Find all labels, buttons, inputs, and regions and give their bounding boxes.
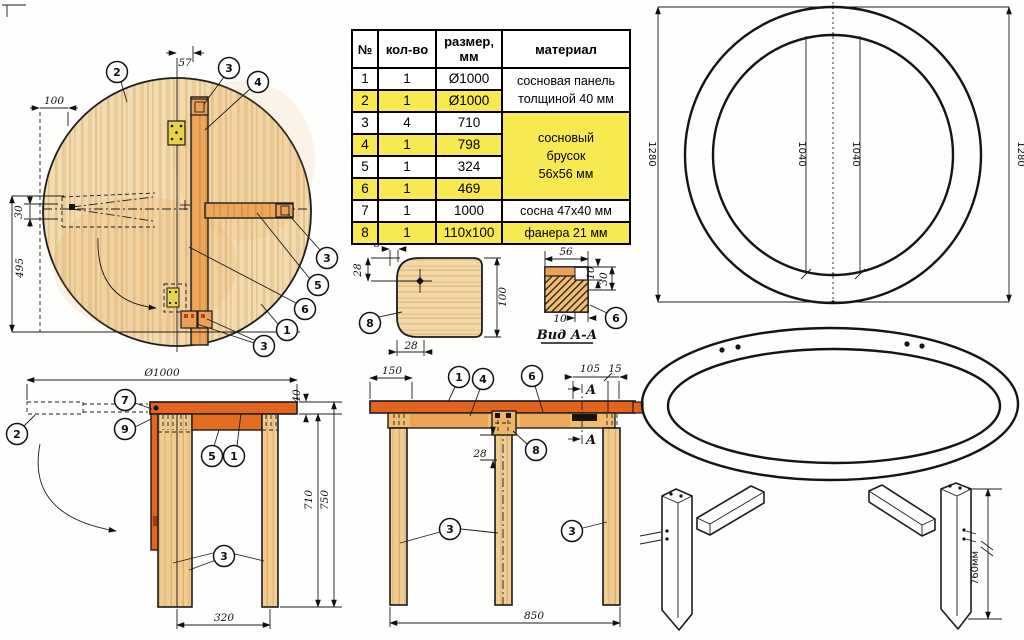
hinge-lower bbox=[167, 288, 179, 307]
svg-text:9: 9 bbox=[121, 423, 129, 436]
dim-1040-left: 1040 bbox=[796, 141, 807, 166]
header-size-line1: размер, bbox=[437, 34, 501, 49]
ring-screw-holes bbox=[719, 341, 924, 352]
apron-bar bbox=[192, 414, 262, 430]
detail-8-plate: 8 28 100 28 8 bbox=[352, 238, 509, 356]
section-view-aa: 56 10 30 10 6 Вид А-А bbox=[536, 246, 627, 343]
dim-760: 760мм bbox=[968, 489, 1002, 619]
header-material: материал bbox=[502, 30, 630, 68]
dim-28-left: 28 bbox=[352, 263, 364, 278]
apron-tint bbox=[410, 414, 488, 427]
dim-30: 30 bbox=[13, 205, 25, 219]
table-cell: 1 bbox=[378, 222, 436, 244]
pivot-bar bbox=[191, 97, 208, 345]
svg-text:1: 1 bbox=[455, 371, 463, 384]
table-cell: 469 bbox=[436, 178, 502, 200]
table-cell: 4 bbox=[378, 112, 436, 134]
svg-text:2: 2 bbox=[113, 66, 121, 79]
callout-5-side: 5 bbox=[202, 446, 223, 467]
sheet-corner-marks bbox=[2, 5, 26, 17]
callout-1-front: 1 bbox=[449, 367, 470, 388]
leaf-raised-outline bbox=[27, 402, 83, 414]
callout-7: 7 bbox=[115, 390, 136, 411]
table-row: 3 4 710 сосновый брусок 56x56 мм bbox=[352, 112, 630, 134]
table-cell: 1 bbox=[378, 134, 436, 156]
callout-3-top: 3 bbox=[219, 58, 240, 79]
wood-lip bbox=[545, 267, 575, 276]
dim-495: 495 bbox=[14, 258, 26, 279]
svg-text:6: 6 bbox=[301, 303, 309, 316]
callout-6: 6 bbox=[295, 299, 316, 320]
table-cell: 324 bbox=[436, 156, 502, 178]
table-cell: Ø1000 bbox=[436, 90, 502, 112]
leg-right bbox=[603, 428, 620, 605]
callout-4: 4 bbox=[248, 72, 269, 93]
callout-3-bottom: 3 bbox=[254, 336, 275, 357]
callout-2-side: 2 bbox=[7, 424, 28, 445]
table-cell: 4 bbox=[352, 134, 378, 156]
mortise-slot bbox=[572, 414, 597, 421]
dim-40: 40 bbox=[291, 389, 303, 404]
table-cell: 1000 bbox=[436, 200, 502, 222]
table-cell: 1 bbox=[378, 156, 436, 178]
table-cell: 3 bbox=[352, 112, 378, 134]
material-line: сосновый bbox=[503, 129, 629, 147]
table-cell: 5 bbox=[352, 156, 378, 178]
leg-pair bbox=[158, 414, 192, 607]
table-cell: 1 bbox=[378, 200, 436, 222]
callout-9: 9 bbox=[115, 419, 136, 440]
assembly-perspective: 760мм bbox=[640, 328, 1018, 630]
table-cell: Ø1000 bbox=[436, 68, 502, 90]
dim-10-bottom: 10 bbox=[553, 313, 567, 325]
material-line: сосновая панель bbox=[503, 72, 629, 90]
callout-1-side: 1 bbox=[224, 446, 245, 467]
side-view-folded: Ø1000 40 710 750 320 7 9 2 5 1 3 bbox=[7, 367, 343, 629]
ring-front-view: 1280 1280 1040 1040 bbox=[646, 2, 1024, 307]
callout-2: 2 bbox=[107, 62, 128, 83]
dim-1040-right: 1040 bbox=[850, 141, 861, 166]
svg-text:5: 5 bbox=[208, 450, 216, 463]
svg-text:2: 2 bbox=[13, 428, 21, 441]
dim-57: 57 bbox=[178, 57, 192, 69]
table-cell: 7 bbox=[352, 200, 378, 222]
dim-15: 15 bbox=[608, 363, 622, 375]
header-size-line2: мм bbox=[437, 49, 501, 64]
callout-5: 5 bbox=[308, 275, 329, 296]
callout-4-front: 4 bbox=[473, 369, 494, 390]
svg-text:8: 8 bbox=[366, 317, 374, 330]
table-cell: 710 bbox=[436, 112, 502, 134]
section-mark-a-top: A bbox=[584, 383, 596, 398]
table-row: 1 1 Ø1000 сосновая панель толщиной 40 мм bbox=[352, 68, 630, 90]
parts-table: № кол-во размер, мм материал 1 1 Ø1000 с… bbox=[351, 29, 631, 245]
svg-text:3: 3 bbox=[568, 525, 576, 538]
plate-outline bbox=[397, 258, 482, 337]
apron-tint bbox=[520, 414, 570, 427]
ring-outer-ellipse bbox=[642, 328, 1018, 480]
header-qty: кол-во bbox=[378, 30, 436, 68]
callout-6-front: 6 bbox=[522, 366, 543, 387]
dim-30: 30 bbox=[598, 272, 610, 286]
table-cell: 2 bbox=[352, 90, 378, 112]
dim-320: 320 bbox=[214, 612, 234, 624]
dim-850: 850 bbox=[524, 610, 544, 622]
woodworking-plan-sheet: 57 100 30 495 2 3 4 3 5 6 1 3 bbox=[0, 0, 1024, 640]
tabletop-edge bbox=[150, 402, 297, 414]
dim-diameter: Ø1000 bbox=[143, 367, 180, 379]
table-cell: 798 bbox=[436, 134, 502, 156]
dim-100-right: 100 bbox=[497, 287, 509, 307]
leg-block-bottom-left bbox=[181, 311, 197, 328]
dim-1280-left: 1280 bbox=[646, 141, 657, 166]
callout-1: 1 bbox=[277, 320, 298, 341]
svg-text:4: 4 bbox=[254, 76, 262, 89]
header-size: размер, мм bbox=[436, 30, 502, 68]
table-cell: сосна 47x40 мм bbox=[502, 200, 630, 222]
section-label: Вид А-А bbox=[536, 328, 598, 343]
table-cell: 8 bbox=[352, 222, 378, 244]
svg-text:3: 3 bbox=[260, 340, 268, 353]
table-cell: 1 bbox=[352, 68, 378, 90]
callout-3-front-left: 3 bbox=[440, 519, 461, 540]
dim-710: 710 bbox=[303, 490, 315, 510]
leg-right bbox=[262, 414, 278, 607]
svg-text:1: 1 bbox=[230, 450, 238, 463]
svg-text:6: 6 bbox=[612, 312, 620, 325]
leg-left-3d bbox=[640, 489, 692, 630]
table-cell-material-panel: сосновая панель толщиной 40 мм bbox=[502, 68, 630, 112]
ring-inner-ellipse bbox=[668, 349, 1000, 463]
svg-text:8: 8 bbox=[532, 444, 540, 457]
svg-text:6: 6 bbox=[528, 370, 536, 383]
svg-text:7: 7 bbox=[121, 394, 129, 407]
dim-28-bottom: 28 bbox=[403, 340, 418, 352]
dim-105: 105 bbox=[580, 363, 600, 375]
svg-text:4: 4 bbox=[479, 373, 487, 386]
svg-text:3: 3 bbox=[220, 550, 228, 563]
svg-text:3: 3 bbox=[323, 252, 331, 265]
dim-750: 750 bbox=[319, 490, 331, 510]
table-header-row: № кол-во размер, мм материал bbox=[352, 30, 630, 68]
table-cell: 1 bbox=[378, 178, 436, 200]
dim-10-right: 10 bbox=[585, 266, 597, 280]
table-cell: 1 bbox=[378, 68, 436, 90]
material-line: толщиной 40 мм bbox=[503, 90, 629, 108]
table-cell: 6 bbox=[352, 178, 378, 200]
table-cell: фанера 21 мм bbox=[502, 222, 630, 244]
top-view-circle: 57 100 30 495 2 3 4 3 5 6 1 3 bbox=[2, 5, 338, 357]
table-row: 7 1 1000 сосна 47x40 мм bbox=[352, 200, 630, 222]
material-line: брусок bbox=[503, 147, 629, 165]
leg-center bbox=[495, 428, 512, 605]
dim-28: 28 bbox=[472, 448, 487, 460]
callout-8-front: 8 bbox=[526, 440, 547, 461]
fold-arrow-side bbox=[38, 444, 116, 531]
callout-3-side: 3 bbox=[214, 546, 235, 567]
dim-760mm: 760мм bbox=[970, 551, 981, 585]
leg-left bbox=[390, 428, 407, 605]
stretcher-left-3d bbox=[697, 486, 764, 535]
table-row: 8 1 110x100 фанера 21 мм bbox=[352, 222, 630, 244]
callout-8: 8 bbox=[360, 313, 381, 334]
callout-3-right: 3 bbox=[317, 248, 338, 269]
svg-text:3: 3 bbox=[446, 523, 454, 536]
svg-text:3: 3 bbox=[225, 62, 233, 75]
callout-6-section: 6 bbox=[606, 308, 627, 329]
hinge-pin bbox=[154, 406, 159, 411]
stretcher-right-3d bbox=[869, 485, 935, 536]
material-line: 56x56 мм bbox=[503, 165, 629, 183]
dim-56: 56 bbox=[559, 246, 573, 258]
table-cell: 1 bbox=[378, 90, 436, 112]
hatched-section bbox=[545, 276, 588, 312]
table-cell: 110x100 bbox=[436, 222, 502, 244]
section-mark-a-bottom: A bbox=[584, 433, 596, 448]
front-view: 150 105 15 A A 28 850 1 4 6 8 3 3 bbox=[370, 363, 643, 627]
dim-150: 150 bbox=[382, 365, 402, 377]
dim-100: 100 bbox=[44, 95, 64, 107]
table-cell-material-block: сосновый брусок 56x56 мм bbox=[502, 112, 630, 200]
header-num: № bbox=[352, 30, 378, 68]
svg-text:1: 1 bbox=[283, 324, 291, 337]
leader bbox=[590, 305, 607, 313]
dim-1280-right: 1280 bbox=[1015, 141, 1024, 166]
callout-3-front-right: 3 bbox=[562, 521, 583, 542]
svg-text:5: 5 bbox=[314, 279, 322, 292]
